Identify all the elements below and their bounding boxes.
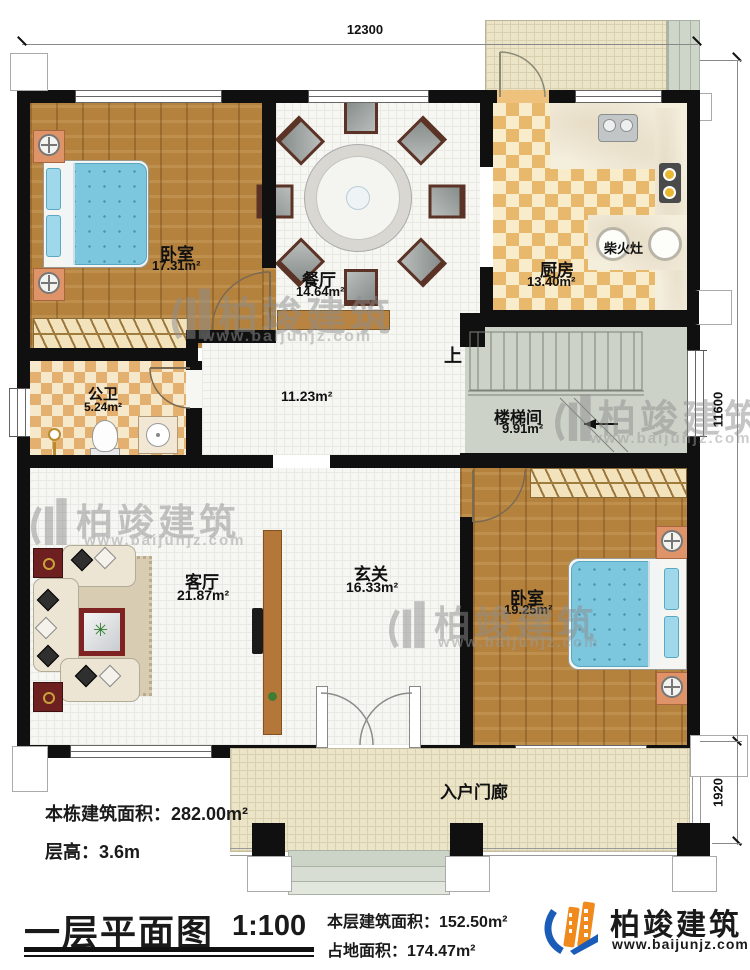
bedroom2-nightstand-bottom bbox=[656, 672, 688, 705]
room-label-porch: 入户门廊 bbox=[440, 778, 508, 803]
stair-up-label: 上 bbox=[444, 342, 462, 368]
window bbox=[308, 90, 429, 103]
tv-wall-panel bbox=[263, 530, 282, 735]
stairwell-floor bbox=[465, 327, 687, 453]
room-area-living: 21.87m² bbox=[177, 587, 229, 603]
corner-mark bbox=[12, 746, 48, 792]
bedroom2-pillow-1 bbox=[664, 568, 679, 610]
bedroom1-nightstand-bottom bbox=[33, 268, 65, 301]
room-area-bedroom2: 19.25m² bbox=[504, 602, 552, 617]
brand-logo-icon bbox=[540, 898, 604, 956]
dining-half-wall bbox=[277, 310, 390, 330]
bedroom2-nightstand-top bbox=[656, 526, 688, 559]
room-area-bathroom: 5.24m² bbox=[84, 400, 122, 414]
rear-porch-floor bbox=[485, 20, 667, 98]
room-area-stairwell: 9.91m² bbox=[502, 421, 543, 436]
room-area-kitchen: 13.40m² bbox=[527, 274, 575, 289]
window bbox=[70, 745, 212, 758]
wood-stove-burner-right bbox=[648, 227, 682, 261]
bedroom2-wardrobe bbox=[530, 468, 687, 498]
bedroom2-duvet-fold bbox=[648, 561, 662, 667]
bedroom1-duvet-fold bbox=[60, 163, 75, 265]
sofa-bottom bbox=[60, 658, 140, 702]
plan-title-underline bbox=[24, 947, 314, 952]
porch-column bbox=[450, 823, 483, 856]
porch-steps bbox=[288, 850, 450, 895]
brand-url: www.baijunjz.com bbox=[612, 936, 749, 952]
bath-sink-drain bbox=[156, 433, 160, 437]
porch-column-base bbox=[247, 856, 292, 892]
plan-scale: 1:100 bbox=[232, 910, 306, 943]
entry-door-leaf-left bbox=[316, 686, 328, 748]
flue-box-right bbox=[695, 290, 732, 325]
dim-top: 12300 bbox=[325, 22, 405, 37]
kitchen-sink-basin-left bbox=[603, 119, 616, 132]
bedroom2-bed-mattress bbox=[571, 561, 655, 667]
floor-drain bbox=[48, 428, 61, 441]
room-area-bedroom1: 17.31m² bbox=[152, 258, 200, 273]
plan-title-underline-2 bbox=[24, 955, 314, 957]
dining-table-center bbox=[346, 186, 370, 210]
bedroom1-pillow-2 bbox=[46, 215, 61, 257]
bedroom2-pillow-2 bbox=[664, 616, 679, 658]
room-area-dining: 14.64m² bbox=[296, 284, 344, 299]
side-table-top bbox=[33, 548, 63, 578]
tv-screen bbox=[252, 608, 263, 654]
bedroom1-bed-mattress bbox=[66, 163, 147, 265]
dining-chair bbox=[429, 185, 466, 219]
bedroom1-pillow-1 bbox=[46, 168, 61, 210]
porch-column-base bbox=[445, 856, 490, 892]
entry-door-leaf-right bbox=[409, 686, 421, 748]
land-area-note: 占地面积：174.47m² bbox=[327, 937, 476, 961]
floor-area-note: 本层建筑面积：152.50m² bbox=[327, 908, 508, 932]
room-area-hall: 11.23m² bbox=[281, 388, 332, 404]
gas-burner-2 bbox=[663, 186, 676, 199]
rear-porch-steps bbox=[667, 20, 700, 98]
dim-right-porch: 1920 bbox=[711, 763, 726, 823]
coffee-table-plant: ✳ bbox=[93, 620, 108, 641]
tv-wall-plant bbox=[268, 692, 277, 701]
window bbox=[75, 90, 222, 103]
bedroom1-nightstand-top bbox=[33, 130, 65, 163]
toilet-bowl bbox=[92, 420, 118, 452]
porch-column bbox=[677, 823, 710, 856]
note-floor-height: 层高：3.6m bbox=[45, 838, 140, 864]
kitchen-counter-right bbox=[655, 108, 687, 310]
floor-drain-stem bbox=[53, 442, 56, 456]
floor-plan-canvas: ✳ bbox=[0, 0, 750, 970]
note-building-area: 本栋建筑面积：282.00m² bbox=[45, 800, 248, 826]
label-wood-stove: 柴火灶 bbox=[604, 238, 643, 257]
window bbox=[575, 90, 662, 103]
corridor-floor bbox=[202, 343, 276, 455]
dining-chair bbox=[344, 269, 378, 306]
window bbox=[687, 350, 707, 437]
porch-column bbox=[252, 823, 285, 856]
porch-column-base bbox=[672, 856, 717, 892]
bedroom1-wardrobe bbox=[33, 318, 188, 350]
room-area-foyer: 16.33m² bbox=[346, 579, 398, 595]
window bbox=[9, 388, 30, 437]
side-table-bottom bbox=[33, 682, 63, 712]
corner-mark bbox=[10, 53, 48, 91]
kitchen-sink-basin-right bbox=[620, 119, 633, 132]
gas-burner-1 bbox=[663, 168, 676, 181]
dim-right-main: 11600 bbox=[711, 380, 726, 440]
